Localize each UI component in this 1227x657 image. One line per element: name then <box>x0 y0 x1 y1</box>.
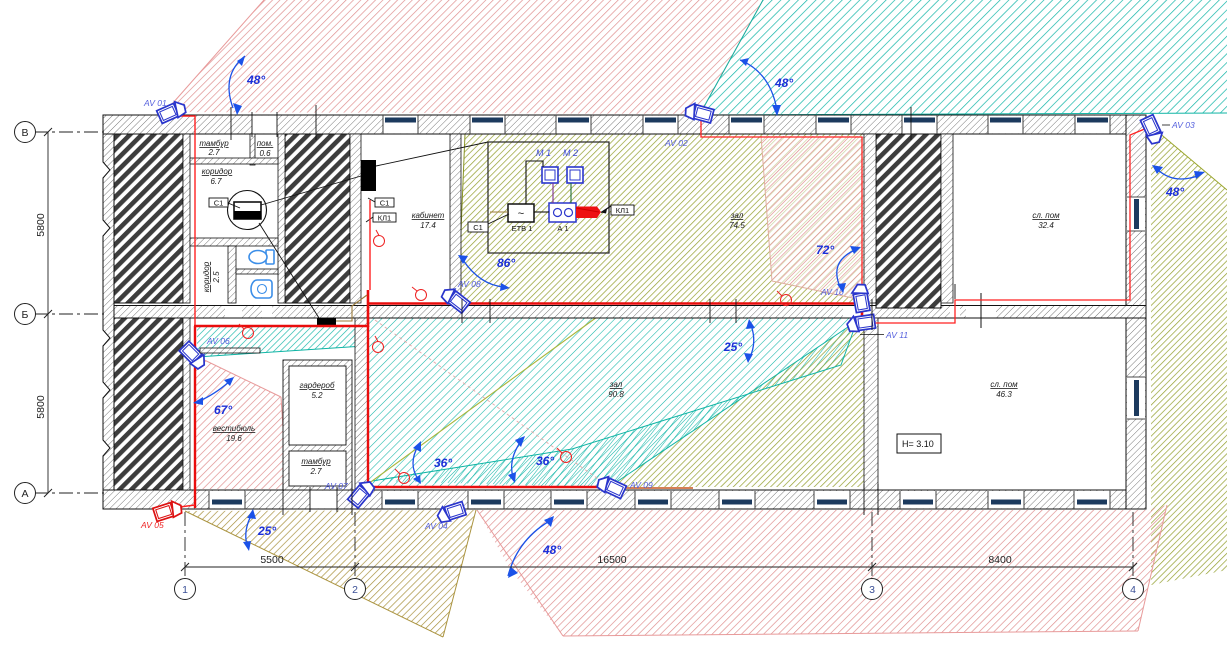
svg-text:25°: 25° <box>723 340 742 354</box>
svg-text:M 2: M 2 <box>563 148 578 158</box>
svg-text:AV 02: AV 02 <box>664 138 688 148</box>
svg-text:AV 08: AV 08 <box>457 279 481 289</box>
svg-text:зал: зал <box>730 211 744 220</box>
svg-text:AV 01: AV 01 <box>143 98 167 108</box>
svg-text:пом.: пом. <box>257 139 274 148</box>
svg-text:AV 06: AV 06 <box>206 336 230 346</box>
svg-text:AV 04: AV 04 <box>424 521 448 531</box>
svg-text:36°: 36° <box>536 454 554 468</box>
svg-text:С1: С1 <box>380 199 390 208</box>
svg-text:67°: 67° <box>214 403 232 417</box>
svg-text:72°: 72° <box>816 243 834 257</box>
svg-text:сл. пом: сл. пом <box>1032 211 1060 220</box>
svg-text:ЕТВ 1: ЕТВ 1 <box>512 224 533 233</box>
svg-text:А 1: А 1 <box>557 224 568 233</box>
svg-text:4: 4 <box>1130 584 1136 596</box>
svg-text:16500: 16500 <box>597 554 626 566</box>
svg-text:2.5: 2.5 <box>212 271 221 284</box>
svg-text:2.7: 2.7 <box>207 148 220 157</box>
svg-text:3: 3 <box>869 584 875 596</box>
svg-text:H= 3.10: H= 3.10 <box>902 439 934 449</box>
svg-text:48°: 48° <box>774 76 793 90</box>
svg-text:зал: зал <box>609 380 623 389</box>
svg-text:48°: 48° <box>542 543 561 557</box>
svg-text:С1: С1 <box>214 199 224 208</box>
svg-text:тамбур: тамбур <box>301 457 331 466</box>
svg-text:M 1: M 1 <box>536 148 551 158</box>
svg-text:КЛ1: КЛ1 <box>378 214 391 223</box>
svg-text:AV 05: AV 05 <box>140 520 164 530</box>
svg-text:48°: 48° <box>246 73 265 87</box>
svg-text:Б: Б <box>22 309 29 321</box>
svg-text:90.8: 90.8 <box>608 390 624 399</box>
svg-text:AV 07: AV 07 <box>324 481 348 491</box>
svg-text:8400: 8400 <box>988 554 1012 566</box>
svg-text:вестибюль: вестибюль <box>213 424 256 433</box>
svg-text:2.7: 2.7 <box>309 467 322 476</box>
svg-text:~: ~ <box>518 208 524 220</box>
svg-text:32.4: 32.4 <box>1038 221 1054 230</box>
svg-text:74.5: 74.5 <box>729 221 745 230</box>
svg-text:2: 2 <box>352 584 358 596</box>
svg-text:17.4: 17.4 <box>420 221 436 230</box>
svg-text:тамбур: тамбур <box>199 139 229 148</box>
svg-text:сл. пом: сл. пом <box>990 380 1018 389</box>
svg-text:AV 03: AV 03 <box>1171 120 1195 130</box>
svg-text:1: 1 <box>182 584 188 596</box>
svg-text:6.7: 6.7 <box>210 177 222 186</box>
svg-text:5800: 5800 <box>35 395 47 419</box>
svg-text:коридор: коридор <box>202 167 233 176</box>
svg-text:0.6: 0.6 <box>259 149 271 158</box>
svg-text:В: В <box>21 127 28 139</box>
svg-text:5500: 5500 <box>260 554 284 566</box>
svg-text:46.3: 46.3 <box>996 390 1012 399</box>
svg-text:коридор: коридор <box>202 261 211 292</box>
svg-text:5800: 5800 <box>35 213 47 237</box>
svg-text:86°: 86° <box>497 256 515 270</box>
svg-text:48°: 48° <box>1165 185 1184 199</box>
svg-text:гардероб: гардероб <box>299 381 335 390</box>
svg-text:5.2: 5.2 <box>311 391 323 400</box>
svg-text:А: А <box>21 488 28 500</box>
svg-text:кабинет: кабинет <box>412 211 445 220</box>
svg-text:36°: 36° <box>434 456 452 470</box>
svg-text:С1: С1 <box>473 223 483 232</box>
svg-text:AV 11: AV 11 <box>885 330 908 340</box>
svg-text:25°: 25° <box>257 524 276 538</box>
svg-text:19.6: 19.6 <box>226 434 242 443</box>
svg-text:КЛ1: КЛ1 <box>616 206 629 215</box>
svg-text:AV 09: AV 09 <box>629 480 653 490</box>
